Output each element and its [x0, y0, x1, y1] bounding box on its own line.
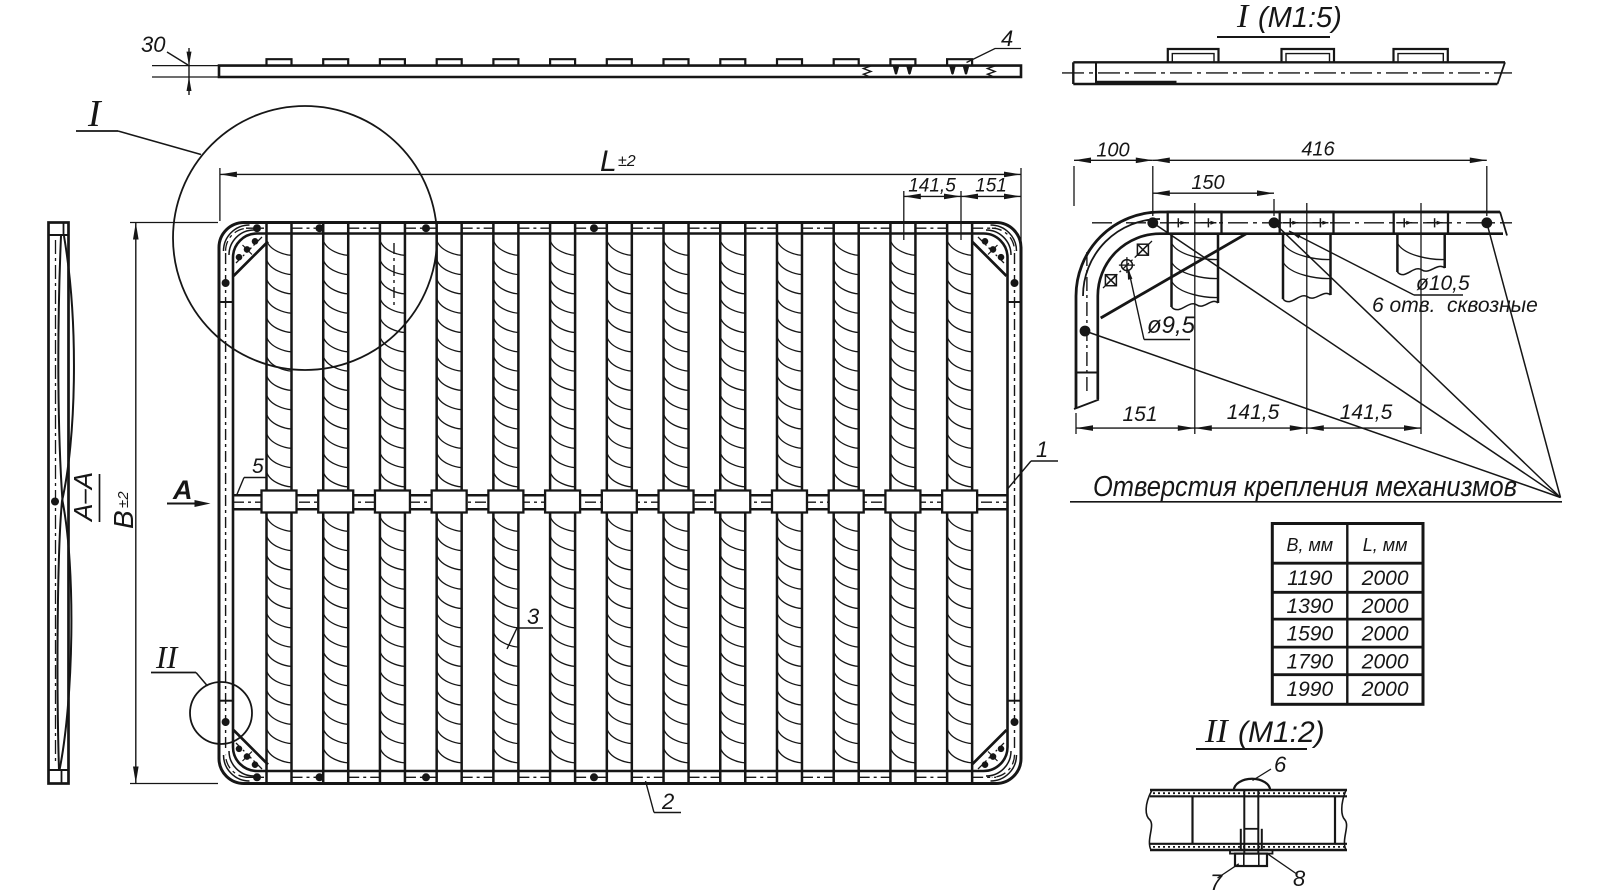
- svg-text:1590: 1590: [1286, 623, 1333, 646]
- svg-text:В, мм: В, мм: [1286, 535, 1333, 555]
- svg-text:2000: 2000: [1361, 623, 1409, 646]
- svg-text:8: 8: [1293, 866, 1306, 891]
- svg-text:1990: 1990: [1286, 678, 1333, 701]
- svg-text:2000: 2000: [1361, 595, 1409, 618]
- svg-text:I: I: [1236, 0, 1250, 35]
- svg-text:±2: ±2: [115, 491, 132, 508]
- svg-text:30: 30: [141, 32, 166, 57]
- svg-text:3: 3: [527, 604, 540, 629]
- svg-text:100: 100: [1096, 140, 1129, 162]
- svg-text:2000: 2000: [1361, 567, 1409, 590]
- svg-text:А: А: [172, 475, 193, 505]
- svg-text:Отверстия крепления механизм: Отверстия крепления механизмов: [1093, 471, 1517, 503]
- svg-text:151: 151: [975, 176, 1007, 197]
- svg-text:2000: 2000: [1361, 678, 1409, 701]
- svg-text:416: 416: [1301, 139, 1335, 161]
- svg-text:1790: 1790: [1286, 650, 1333, 673]
- svg-text:151: 151: [1122, 403, 1157, 426]
- svg-text:6: 6: [1274, 752, 1287, 777]
- svg-text:7: 7: [1210, 870, 1223, 893]
- svg-text:141,5: 141,5: [1340, 401, 1393, 424]
- svg-text:(М1:2): (М1:2): [1238, 716, 1325, 749]
- svg-text:4: 4: [1001, 26, 1013, 51]
- svg-text:2000: 2000: [1361, 650, 1409, 673]
- svg-text:L, мм: L, мм: [1363, 535, 1408, 555]
- svg-text:1190: 1190: [1287, 567, 1332, 590]
- svg-text:(М1:5): (М1:5): [1258, 2, 1342, 34]
- svg-text:В: В: [108, 510, 139, 529]
- svg-text:±2: ±2: [618, 153, 636, 170]
- svg-text:ø9,5: ø9,5: [1147, 312, 1196, 339]
- svg-text:2: 2: [661, 789, 674, 814]
- svg-text:L: L: [600, 145, 617, 178]
- svg-text:II: II: [155, 639, 179, 675]
- svg-text:1390: 1390: [1286, 595, 1333, 618]
- svg-text:5: 5: [252, 455, 264, 478]
- svg-text:II: II: [1204, 713, 1229, 750]
- svg-text:I: I: [87, 93, 103, 135]
- svg-text:6 отв.: 6 отв.: [1372, 294, 1435, 317]
- svg-text:ø10,5: ø10,5: [1416, 272, 1470, 295]
- svg-text:141,5: 141,5: [908, 176, 956, 197]
- svg-text:150: 150: [1191, 172, 1224, 194]
- svg-text:сквозные: сквозные: [1447, 294, 1538, 317]
- svg-text:1: 1: [1036, 437, 1048, 462]
- svg-text:А–А: А–А: [68, 472, 98, 523]
- svg-text:141,5: 141,5: [1227, 401, 1280, 424]
